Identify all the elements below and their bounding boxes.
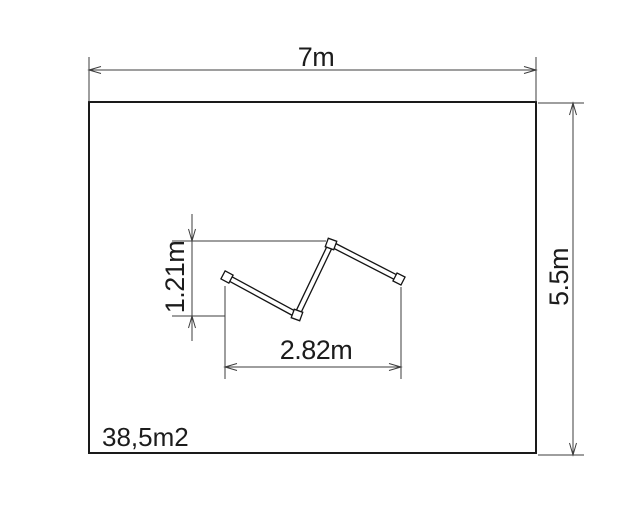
room-width-label: 7m — [298, 42, 335, 72]
room-height-label: 5.5m — [544, 248, 574, 306]
room-height-dimension: 5.5m — [538, 103, 584, 455]
floor-plan-canvas: 7m 5.5m 1.21m 2.82m — [0, 0, 630, 531]
room-width-dimension: 7m — [89, 42, 536, 102]
floor-plan-drawing: 7m 5.5m 1.21m 2.82m — [0, 0, 630, 531]
partition-width-label: 2.82m — [280, 335, 353, 365]
partition-height-label: 1.21m — [160, 241, 190, 314]
area-label: 38,5m2 — [102, 422, 189, 452]
